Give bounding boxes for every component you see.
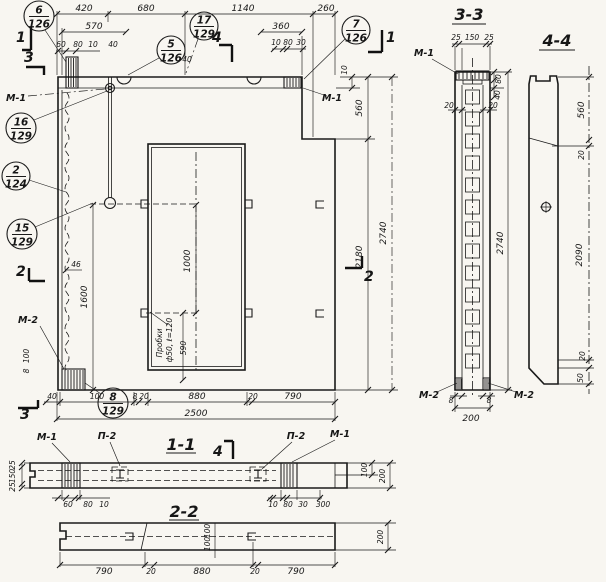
callout-sheet: 129 [102, 406, 124, 418]
cut-label-1: 1 [16, 30, 26, 46]
callout-sheet: 129 [11, 237, 33, 249]
dim-label: 420 [75, 4, 92, 14]
section-title: 4-4 [542, 31, 572, 50]
dim-label: 80 [73, 40, 83, 49]
dim-label: 260 [317, 4, 334, 14]
dim-label: 200 [462, 414, 479, 424]
dim-label: 80 [494, 74, 503, 84]
section-3-3: 3-3 [414, 5, 534, 424]
dim-label: 150 [8, 469, 17, 484]
dim-label: 60 [56, 40, 66, 49]
dim-label: 680 [137, 4, 154, 14]
dim-label: 300 [316, 500, 331, 509]
dim-label: 30 [296, 38, 306, 47]
callout-2-124: 2 124 [2, 162, 66, 192]
dim-label: 790 [95, 567, 112, 577]
plug-circle [105, 198, 116, 209]
dim-label: 360 [272, 22, 289, 32]
embed-top-right [284, 77, 301, 88]
callout-5-126: 5 126 [128, 36, 185, 75]
leader [437, 383, 457, 392]
section-1-1: 1-1 М-1 П-2 П-2 М-1 25 [8, 429, 396, 509]
callout-sheet: 124 [5, 179, 27, 191]
dim-label: 2180 [355, 245, 365, 268]
callout-num: 7 [352, 19, 360, 31]
dim-label: 1600 [80, 285, 90, 308]
mark-p2-label: П-2 [287, 431, 306, 442]
section-2-2: 2-2 790 20 880 20 790 100 100 200 [57, 502, 396, 577]
section-title: 2-2 [170, 502, 199, 521]
panel-outline [58, 77, 335, 390]
lifting-loop-icon [247, 77, 261, 84]
callout-num: 5 [167, 39, 174, 51]
dim-label: 80 [283, 38, 293, 47]
mark-m1-label: М-1 [330, 429, 350, 440]
leader [432, 59, 458, 74]
dim-label: 200 [378, 469, 387, 484]
dim-label: 20 [250, 567, 260, 576]
plug-note: Пробки [155, 328, 164, 357]
dim-label: 2090 [575, 243, 585, 266]
mark-p2-label: П-2 [98, 431, 117, 442]
section-4-4: 4-4 560 20 2090 20 50 [529, 31, 594, 394]
mark-m2-label: М-2 [419, 390, 439, 401]
dim-label: 10 [268, 500, 278, 509]
step-diagonal [529, 138, 558, 146]
embed-m1-right [281, 463, 297, 488]
mark-m1-label: М-1 [414, 48, 434, 59]
p2-symbol-right [250, 467, 266, 481]
lifting-loop-icon [117, 77, 131, 84]
callout-num: 15 [15, 223, 30, 235]
dim-label: 20 [139, 392, 149, 401]
dim-label: 2740 [379, 221, 389, 244]
cut-label-4: 4 [212, 444, 223, 460]
dim-label: 10 [340, 65, 349, 75]
section-outline [30, 463, 347, 488]
embed-bottom-left-m2 [62, 369, 85, 390]
mark-m1-label: М-1 [6, 93, 26, 104]
dim-label: 100 [360, 463, 369, 478]
dim-label: 100 [203, 537, 212, 552]
anchor-tab [316, 201, 324, 317]
section-title: 1-1 [167, 435, 196, 454]
mark-m1-leader [28, 89, 105, 96]
cut-label-2: 2 [364, 269, 374, 285]
dim-label: 880 [188, 392, 205, 402]
main-elevation-view: 420 680 1140 260 570 360 60 80 10 40 40 … [6, 4, 398, 422]
dim-label: 20 [444, 101, 454, 110]
dim-label: 8 [487, 396, 492, 405]
dim-label: 150 [465, 33, 480, 42]
blueprint-sheet: 420 680 1140 260 570 360 60 80 10 40 40 … [0, 0, 606, 582]
dim-label: 2500 [185, 409, 208, 419]
dim-label: 560 [355, 99, 365, 116]
dim-label: 1000 [183, 249, 193, 272]
dim-label: 790 [284, 392, 301, 402]
panel-working-drawing: 420 680 1140 260 570 360 60 80 10 40 40 … [0, 0, 606, 582]
dim-label: 10 [88, 40, 98, 49]
dim-label: 590 [179, 341, 188, 356]
callout-sheet: 129 [10, 131, 32, 143]
mark-m2-leader [40, 326, 64, 369]
dim-label: 40 [493, 90, 502, 100]
anchor-tab [141, 200, 148, 317]
cut-label-2: 2 [16, 264, 26, 280]
callout-num: 17 [197, 15, 212, 27]
dim-label: 8 [22, 368, 31, 373]
dim-label: 46 [71, 260, 81, 269]
callout-num: 16 [14, 117, 29, 129]
anchor-tab [245, 200, 252, 317]
plug-note: ф50, ℓ=120 [165, 318, 174, 363]
callout-sheet: 129 [193, 29, 215, 41]
callout-num: 6 [35, 5, 42, 17]
dim-label: 100 [203, 524, 212, 539]
dim-label: 10 [99, 500, 109, 509]
dim-label: 25 [451, 33, 461, 42]
leader [292, 440, 335, 462]
mark-m1-label: М-1 [322, 93, 342, 104]
dim-label: 570 [85, 22, 102, 32]
dim-label: 8 [133, 392, 138, 401]
dim-label: 80 [283, 500, 293, 509]
dim-label: 560 [577, 101, 587, 118]
dim-label: 20 [146, 567, 156, 576]
embed-m2-bottom-right [483, 378, 490, 390]
mark-m1-leader [303, 88, 327, 96]
callout-num: 2 [12, 165, 19, 177]
dim-label: 40 [47, 392, 57, 401]
leader [262, 442, 292, 469]
leader [488, 383, 516, 392]
callout-15-129: 15 129 [7, 203, 93, 249]
cut-marks: 1 3 2 3 1 2 4 4 [16, 27, 396, 460]
embed-m2-bottom-left [455, 378, 462, 390]
p2-symbol-left [112, 467, 128, 481]
dim-label: 10 [271, 38, 281, 47]
dim-label: 790 [287, 567, 304, 577]
dim-label: 60 [63, 500, 73, 509]
dim-label: 25 [484, 33, 494, 42]
dim-label: 30 [298, 500, 308, 509]
dim-label: 20 [578, 351, 587, 361]
dim-label: 40 [108, 40, 118, 49]
wavy-joint-line [65, 93, 69, 371]
cut-label-3: 3 [20, 407, 30, 423]
mark-m2-label: М-2 [514, 390, 534, 401]
dim-label: 50 [576, 373, 585, 383]
dim-label: 25 [8, 482, 17, 492]
mark-m2-label: М-2 [18, 315, 38, 326]
dim-label: 25 [8, 460, 17, 470]
dim-label: 20 [248, 392, 258, 401]
leader [52, 443, 70, 462]
dim-label: 880 [193, 567, 210, 577]
callout-sheet: 126 [345, 33, 367, 45]
cut-label-3: 3 [24, 50, 34, 66]
cut-label-1: 1 [386, 30, 396, 46]
callout-sheet: 126 [28, 19, 50, 31]
mark-m1-label: М-1 [37, 432, 57, 443]
dim-label: 80 [83, 500, 93, 509]
hole-cross [540, 201, 552, 213]
section-title: 3-3 [455, 5, 484, 24]
dim-label: 8 [449, 396, 454, 405]
dim-label: 100 [22, 349, 31, 364]
dim-label: 20 [488, 101, 498, 110]
callout-sheet: 126 [160, 53, 182, 65]
section-outline [529, 76, 558, 384]
dim-label: 20 [577, 150, 586, 160]
embed-m1-left [62, 463, 80, 488]
embed-top-left [66, 57, 78, 88]
dim-label: 2740 [496, 231, 506, 254]
dim-label: 200 [376, 530, 385, 545]
callout-num: 8 [109, 392, 116, 404]
dim-label: 1140 [232, 4, 255, 14]
callout-7-126: 7 126 [304, 16, 370, 79]
